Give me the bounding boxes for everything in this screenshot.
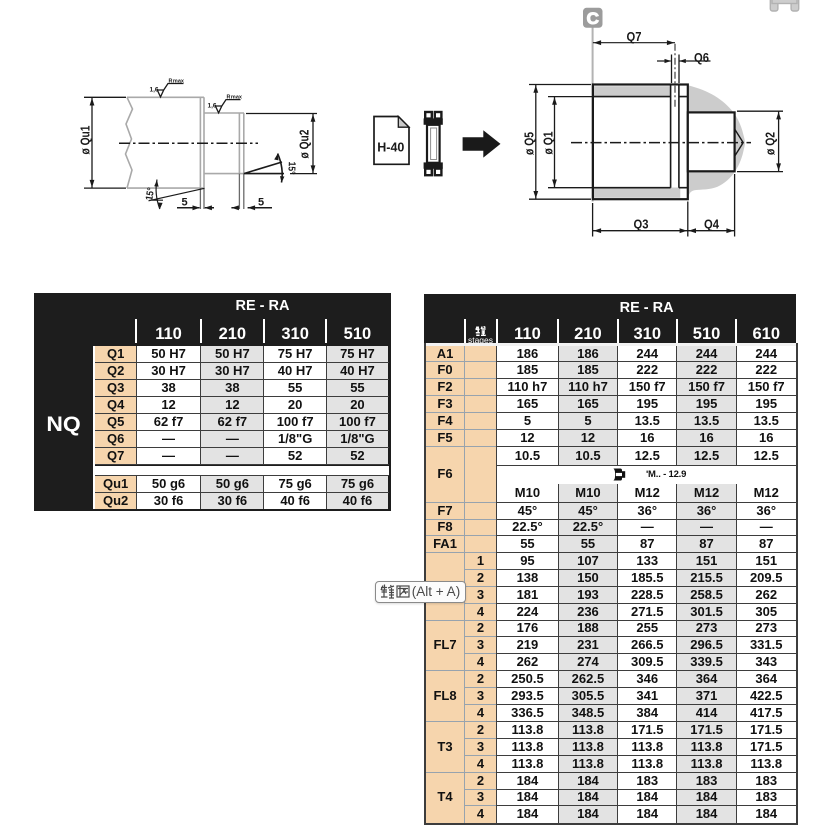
- svg-text:C: C: [587, 9, 599, 28]
- svg-text:R max: R max: [227, 94, 243, 100]
- svg-text:5: 5: [181, 197, 187, 209]
- svg-text:R max: R max: [169, 78, 185, 84]
- svg-text:1,6: 1,6: [208, 103, 217, 110]
- svg-text:5: 5: [258, 197, 264, 209]
- svg-text:ø Q5: ø Q5: [522, 132, 537, 155]
- svg-text:Q4: Q4: [704, 217, 720, 232]
- svg-text:15°: 15°: [144, 187, 157, 202]
- svg-text:Q3: Q3: [634, 217, 649, 232]
- svg-text:ø Q1: ø Q1: [541, 132, 556, 155]
- svg-text:1,6: 1,6: [150, 87, 159, 94]
- svg-text:ø Q2: ø Q2: [763, 132, 778, 155]
- svg-text:Q7: Q7: [627, 29, 642, 44]
- svg-text:15°: 15°: [285, 161, 296, 174]
- svg-text:ø Qu2: ø Qu2: [297, 130, 312, 159]
- svg-text:H-40: H-40: [377, 141, 404, 155]
- svg-text:ø Qu1: ø Qu1: [78, 126, 93, 155]
- svg-text:Q6: Q6: [694, 50, 709, 65]
